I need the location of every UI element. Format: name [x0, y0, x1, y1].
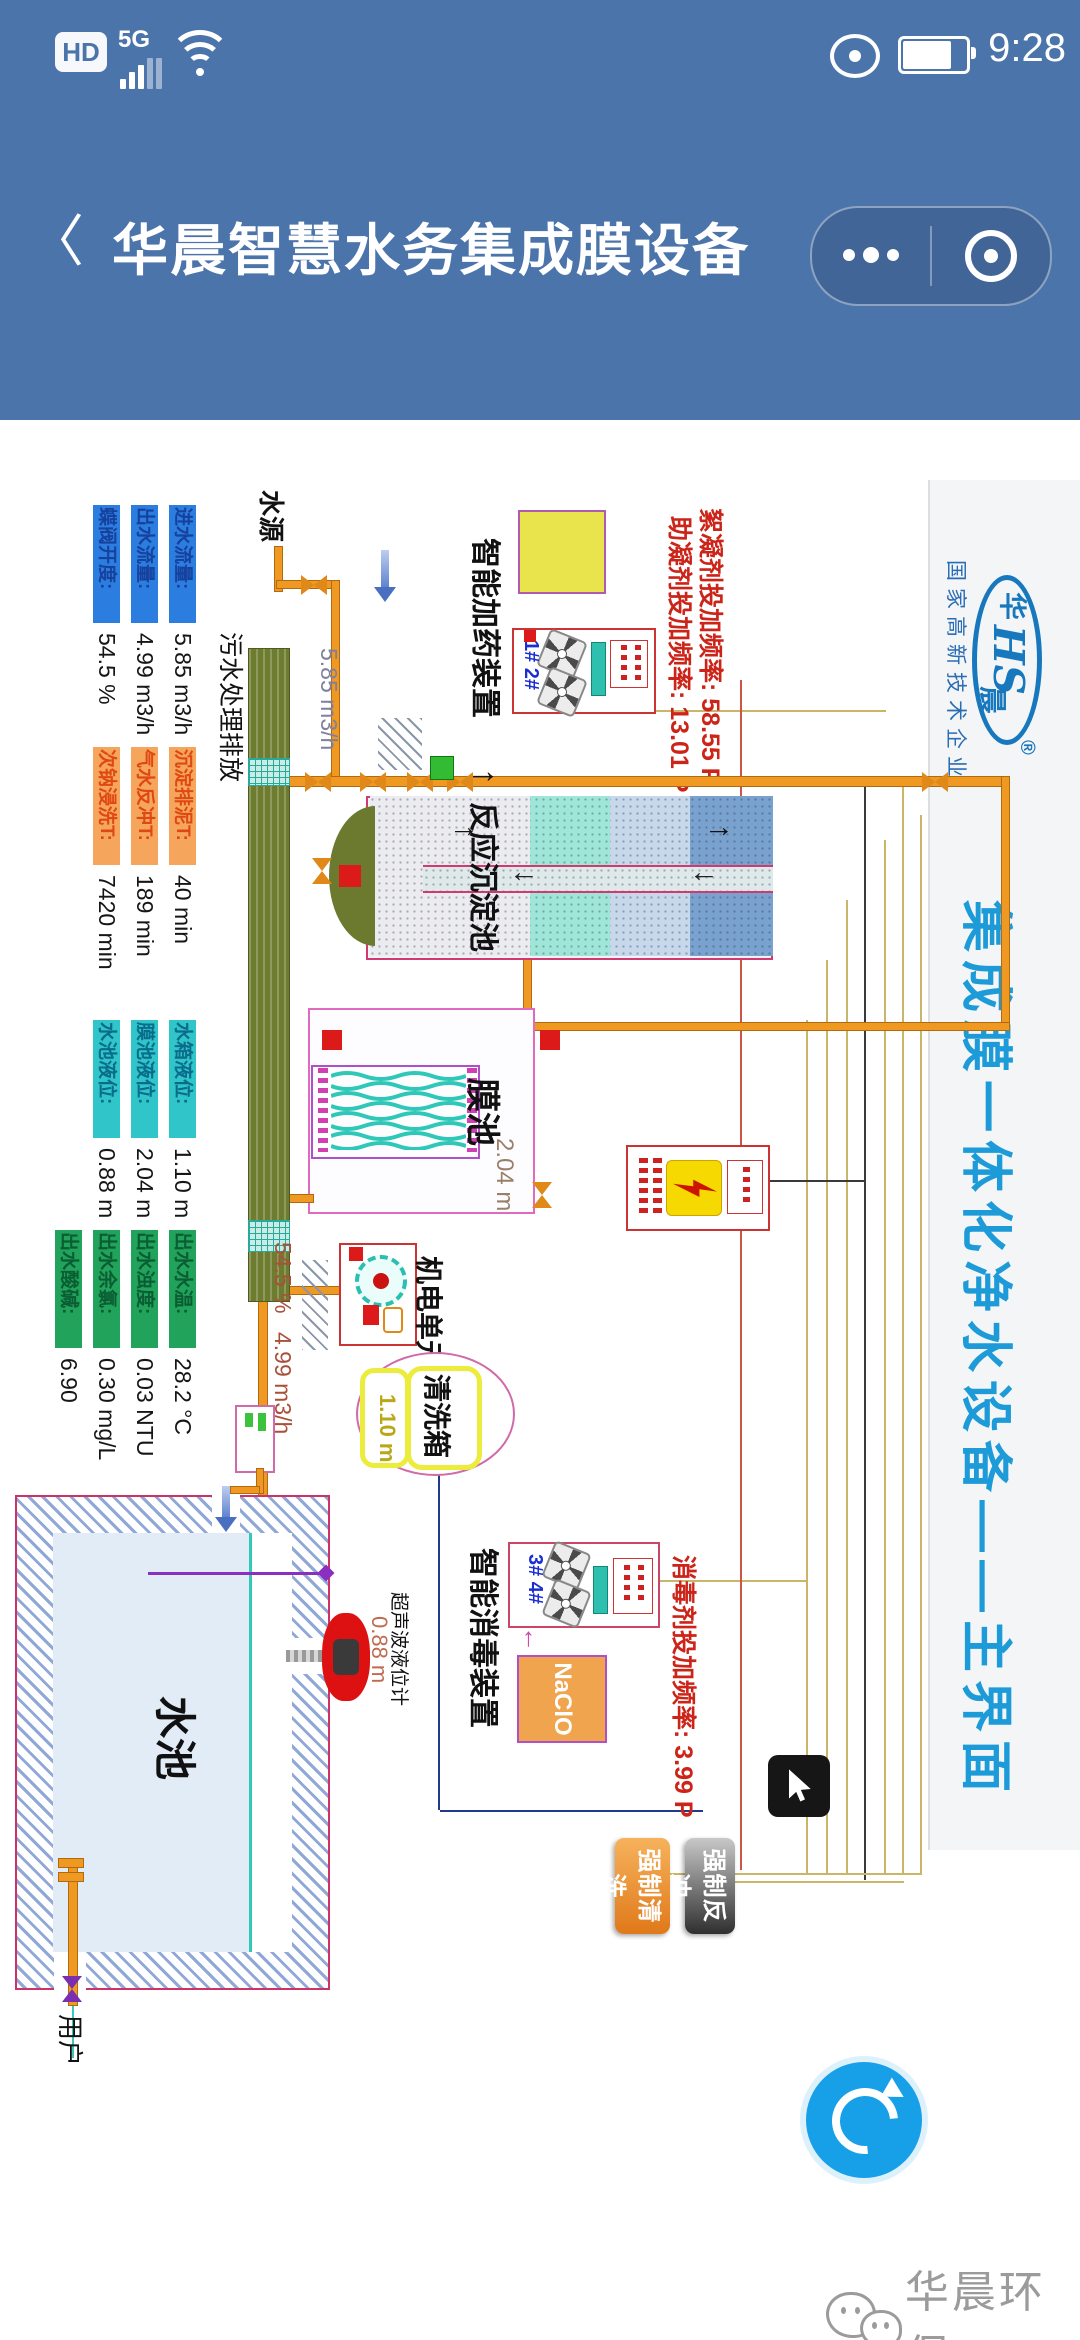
metric-row: 水箱液位:1.10 m [169, 1020, 196, 1218]
electro-unit-box [339, 1243, 417, 1346]
metric-row: 蝶阀开度:54.5 % [93, 505, 120, 735]
refresh-button[interactable] [806, 2062, 922, 2178]
green-indicator [258, 1413, 266, 1431]
metric-label: 沉淀排泥T: [169, 747, 196, 865]
pipe [532, 1022, 1010, 1031]
fan-icon [536, 666, 588, 718]
metric-value: 54.5 % [93, 633, 120, 705]
network-type-label: 5G [118, 26, 150, 54]
more-menu-button[interactable] [812, 208, 930, 304]
green-indicator [245, 1413, 253, 1427]
mouse-cursor-indicator [768, 1755, 830, 1817]
flow-arrow-icon [374, 550, 396, 602]
spool-icon [383, 1307, 403, 1333]
watermark-text: 华晨环保 [905, 2256, 1080, 2340]
certification-text: 国家高新技术企业 [942, 560, 972, 784]
logo-char-hua: 华 [994, 592, 1034, 620]
channel-grate [248, 758, 290, 786]
battery-icon [898, 36, 970, 74]
fan-icon [541, 1578, 592, 1629]
page-title: 华晨智慧水务集成膜设备 [112, 206, 750, 287]
flange-icon [58, 1872, 84, 1882]
metric-label: 膜池液位: [131, 1020, 158, 1138]
flow-direction-arrow: ↓ [510, 869, 540, 884]
metric-row: 次钠浸洗T:7420 min [93, 747, 120, 970]
signal-line [806, 1020, 808, 1875]
more-dots-icon [843, 249, 899, 263]
disinfectant-frequency-text: 消毒剂投加频率: 3.99 P [667, 1555, 703, 1818]
metric-value: 40 min [169, 875, 196, 944]
back-button[interactable]: 〈 [28, 214, 84, 270]
green-valve-icon [430, 756, 454, 780]
disinfection-pump [593, 1566, 608, 1614]
metric-label: 出水酸碱: [55, 1230, 82, 1348]
metric-row: 出水余氯:0.30 mg/L [93, 1230, 120, 1460]
red-valve-icon [540, 1030, 560, 1050]
warning-text-marks [639, 1158, 648, 1214]
signal-line [826, 960, 828, 1875]
ultrasonic-sensor [322, 1613, 370, 1701]
wechat-logo-icon [826, 2288, 895, 2340]
metric-label: 出水水温: [169, 1230, 196, 1348]
ground-hatch [302, 1260, 328, 1350]
metric-label: 进水流量: [169, 505, 196, 623]
pool-inlet-arrow-icon [215, 1486, 237, 1532]
ground-hatch [378, 718, 422, 770]
pump-gear-icon [355, 1255, 407, 1307]
dosing-pump-ids: 1# 2# [519, 640, 542, 690]
metric-value: 6.90 [55, 1358, 82, 1403]
pipe [1001, 776, 1010, 1031]
metric-label: 出水流量: [131, 505, 158, 623]
cursor-arrow-icon [779, 1766, 819, 1806]
metric-row: 进水流量:5.85 m3/h [169, 505, 196, 735]
valve-icon [301, 575, 327, 595]
disinfection-panel [613, 1558, 653, 1614]
sewage-discharge-label: 污水处理排放 [214, 632, 250, 782]
scada-main-title: 集成膜一体化净水设备——主界面 [953, 900, 1028, 1800]
valve-icon [312, 858, 332, 884]
metric-value: 2.04 m [131, 1148, 158, 1218]
metric-value: 0.88 m [93, 1148, 120, 1218]
status-bar: HD 5G 9:28 [0, 0, 1080, 130]
naclo-tank: NaClO [517, 1655, 607, 1743]
dosing-device-label: 智能加药装置 [466, 538, 510, 718]
valve-icon [305, 772, 331, 792]
metric-row: 出水流量:4.99 m3/h [131, 505, 158, 735]
warning-text-marks [653, 1158, 662, 1214]
signal-line [864, 780, 866, 1880]
metric-value: 189 min [131, 875, 158, 957]
metric-label: 次钠浸洗T: [93, 747, 120, 865]
force-backwash-button[interactable]: 强制反冲 [685, 1838, 735, 1934]
signal-line [770, 1180, 864, 1182]
metric-label: 气水反冲T: [131, 747, 158, 865]
membrane-curtains-icon [331, 1070, 466, 1150]
reaction-tank-label: 反应沉淀池 [464, 802, 508, 952]
signal-line [846, 900, 848, 1875]
signal-line [440, 1810, 703, 1812]
red-valve-icon [339, 865, 361, 887]
flow-direction-arrow: ↑ [468, 768, 502, 785]
metric-label: 蝶阀开度: [93, 505, 120, 623]
membrane-rail [318, 1068, 328, 1152]
coagulant-frequency-text: 助凝剂投加频率: 13.01 P [663, 516, 699, 792]
red-indicator [524, 630, 536, 642]
membrane-tank-label: 膜池 [461, 1078, 510, 1146]
metric-row: 出水水温:28.2 °C [169, 1230, 196, 1460]
metric-value: 28.2 °C [169, 1358, 196, 1435]
sensor-beam-line [148, 1572, 328, 1575]
red-valve-icon [363, 1305, 379, 1325]
metric-value: 5.85 m3/h [169, 633, 196, 735]
metrics-level-group: 水箱液位:1.10 m膜池液位:2.04 m水池液位:0.88 m [82, 1020, 196, 1218]
logo-char-chen: 晨 [974, 686, 1014, 714]
metric-value: 0.30 mg/L [93, 1358, 120, 1460]
red-valve-icon [322, 1030, 342, 1050]
metric-label: 水箱液位: [169, 1020, 196, 1138]
phone-screen: HD 5G 9:28 〈 华晨智慧水务集成膜设备 HS 华 晨 ® 国家高新技术… [0, 0, 1080, 2340]
drainage-channel [248, 648, 290, 1302]
disinfection-skid: 3# 4# [508, 1542, 660, 1628]
electrical-panel [727, 1160, 763, 1214]
sensor-display [333, 1639, 359, 1675]
dosing-link-arrow: ← [520, 1626, 546, 1652]
water-surface-line [249, 1533, 252, 1952]
metric-row: 出水酸碱:6.90 [55, 1230, 82, 1460]
metric-value: 4.99 m3/h [131, 633, 158, 735]
signal-line [884, 840, 886, 1875]
wifi-icon [172, 30, 228, 76]
inlet-flow-pipe-value: 5.85 m3/h [315, 648, 342, 750]
watermark: 华晨环保 [826, 2256, 1080, 2340]
close-miniprogram-button[interactable] [932, 208, 1050, 304]
user-label: 用户 [53, 2014, 90, 2066]
dosing-skid: 1# 2# [512, 628, 656, 714]
signal-line [902, 780, 904, 1875]
metric-row: 膜池液位:2.04 m [131, 1020, 158, 1218]
signal-line [920, 815, 922, 1875]
nav-bar: 〈 华晨智慧水务集成膜设备 [0, 130, 1080, 420]
electrical-box [626, 1145, 770, 1231]
flocculant-frequency-text: 絮凝剂投加频率: 58.55 P [694, 508, 730, 784]
miniprogram-capsule [810, 206, 1052, 306]
user-valve-icon [62, 1976, 82, 2002]
metric-row: 水池液位:0.88 m [93, 1020, 120, 1218]
pool-label: 水池 [147, 1696, 208, 1780]
cleaning-box-label: 清洗箱 [418, 1374, 458, 1458]
scada-screen-rotated: HS 华 晨 ® 国家高新技术企业 集成膜一体化净水设备——主界面 絮凝剂投加频… [0, 480, 1080, 2080]
dosing-pump [591, 642, 606, 696]
cleaning-level-value: 1.10 m [374, 1394, 400, 1463]
exit-target-icon [965, 230, 1017, 282]
metric-row: 气水反冲T:189 min [131, 747, 158, 970]
dosing-panel [610, 640, 648, 688]
metrics-timer-group: 沉淀排泥T:40 min气水反冲T:189 min次钠浸洗T:7420 min [82, 747, 196, 970]
signal-bars-icon [120, 58, 162, 89]
metrics-flow-group: 进水流量:5.85 m3/h出水流量:4.99 m3/h蝶阀开度:54.5 % [82, 505, 196, 735]
signal-line [438, 1472, 440, 1810]
force-clean-button[interactable]: 强制清洗 [615, 1838, 670, 1934]
metric-value: 1.10 m [169, 1148, 196, 1218]
metric-label: 出水浊度: [131, 1230, 158, 1348]
valve-open-pipe-value: 54.5 % [269, 1242, 296, 1314]
eye-protection-icon [830, 34, 880, 78]
high-voltage-warning-icon [666, 1160, 722, 1216]
flange-icon [58, 1858, 84, 1868]
dosing-chemical-tank [518, 510, 606, 594]
clock-label: 9:28 [988, 26, 1066, 71]
metrics-quality-group: 出水水温:28.2 °C出水浊度:0.03 NTU出水余氯:0.30 mg/L出… [44, 1230, 196, 1460]
membrane-level-value: 2.04 m [490, 1138, 518, 1211]
water-source-label: 水源 [254, 490, 291, 542]
hd-icon: HD [55, 32, 107, 72]
flow-direction-arrow: ↑ [705, 824, 735, 839]
metric-label: 出水余氯: [93, 1230, 120, 1348]
valve-icon [922, 772, 948, 792]
flow-direction-arrow: ↓ [690, 869, 720, 884]
metric-row: 出水浊度:0.03 NTU [131, 1230, 158, 1460]
outlet-flow-pipe-value: 4.99 m3/h [269, 1332, 296, 1434]
disinfect-pump-ids: 3# 4# [523, 1554, 546, 1604]
valve-icon [360, 772, 386, 792]
metric-row: 沉淀排泥T:40 min [169, 747, 196, 970]
metric-label: 水池液位: [93, 1020, 120, 1138]
naclo-label: NaClO [548, 1662, 576, 1735]
scada-banner: HS 华 晨 ® 国家高新技术企业 集成膜一体化净水设备——主界面 [928, 480, 1080, 1850]
metric-value: 7420 min [93, 875, 120, 970]
red-valve-icon [349, 1247, 363, 1261]
registered-mark: ® [1015, 740, 1038, 755]
valve-icon [532, 1182, 552, 1208]
metric-value: 0.03 NTU [131, 1358, 158, 1456]
disinfection-device-label: 智能消毒装置 [464, 1548, 508, 1728]
